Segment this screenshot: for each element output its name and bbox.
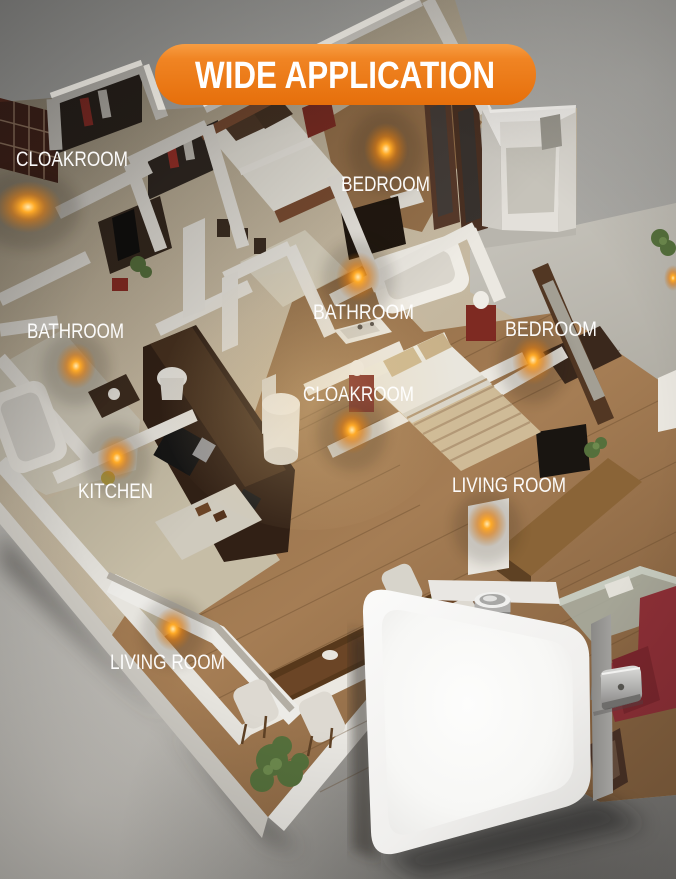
svg-text:BEDROOM: BEDROOM <box>341 173 430 196</box>
svg-text:BATHROOM: BATHROOM <box>313 301 414 324</box>
svg-text:WIDE APPLICATION: WIDE APPLICATION <box>195 55 495 97</box>
svg-text:BATHROOM: BATHROOM <box>27 320 124 343</box>
svg-text:BEDROOM: BEDROOM <box>505 318 597 341</box>
svg-text:LIVING ROOM: LIVING ROOM <box>110 651 225 674</box>
svg-text:KITCHEN: KITCHEN <box>78 480 153 503</box>
svg-text:LIVING ROOM: LIVING ROOM <box>452 474 566 497</box>
svg-text:CLOAKROOM: CLOAKROOM <box>16 148 128 171</box>
svg-text:CLOAKROOM: CLOAKROOM <box>303 383 414 406</box>
